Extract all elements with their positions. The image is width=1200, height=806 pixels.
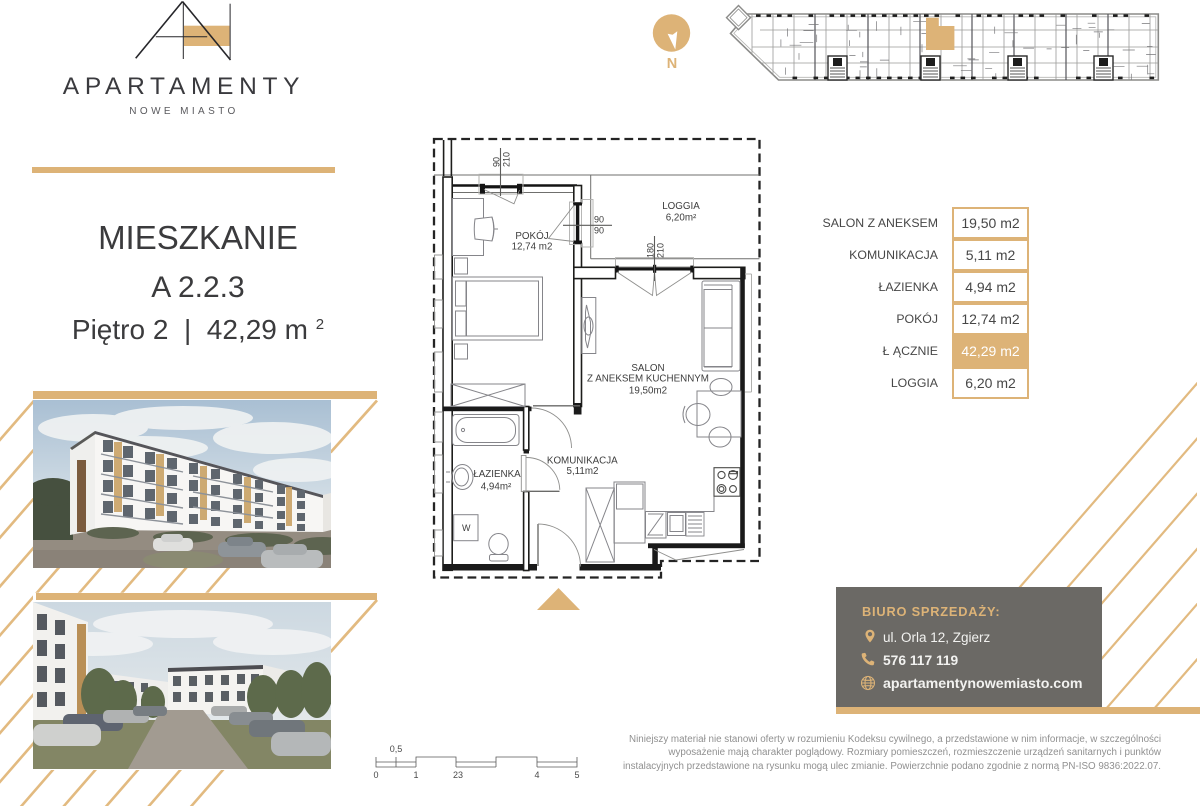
svg-text:180: 180 [646, 243, 656, 258]
svg-text:SALON: SALON [631, 363, 664, 374]
svg-text:5,11m2: 5,11m2 [567, 466, 599, 477]
svg-text:6,20m²: 6,20m² [666, 213, 697, 224]
svg-text:90: 90 [594, 215, 604, 225]
svg-text:ŁAZIENKA: ŁAZIENKA [473, 469, 521, 480]
svg-text:19,50m2: 19,50m2 [629, 386, 667, 397]
svg-text:APARTAMENTY: APARTAMENTY [63, 73, 305, 100]
svg-text:1: 1 [413, 770, 418, 780]
svg-text:4,94m²: 4,94m² [481, 482, 512, 493]
svg-text:0: 0 [373, 770, 378, 780]
svg-text:210: 210 [656, 243, 666, 258]
svg-text:NOWE MIASTO: NOWE MIASTO [129, 106, 238, 117]
svg-text:KOMUNIKACJA: KOMUNIKACJA [547, 456, 618, 467]
svg-text:W: W [462, 523, 471, 533]
svg-text:12,74 m2: 12,74 m2 [512, 242, 553, 253]
svg-text:90: 90 [492, 157, 502, 167]
svg-text:N: N [667, 56, 677, 72]
svg-text:23: 23 [453, 770, 463, 780]
svg-text:5: 5 [574, 770, 579, 780]
svg-text:0,5: 0,5 [390, 744, 403, 754]
svg-text:4: 4 [534, 770, 539, 780]
svg-text:LOGGIA: LOGGIA [662, 201, 700, 212]
svg-text:90: 90 [594, 226, 604, 236]
svg-text:Z ANEKSEM KUCHENNYM: Z ANEKSEM KUCHENNYM [587, 374, 709, 385]
svg-text:210: 210 [502, 152, 512, 167]
svg-text:POKÓJ: POKÓJ [515, 231, 548, 242]
